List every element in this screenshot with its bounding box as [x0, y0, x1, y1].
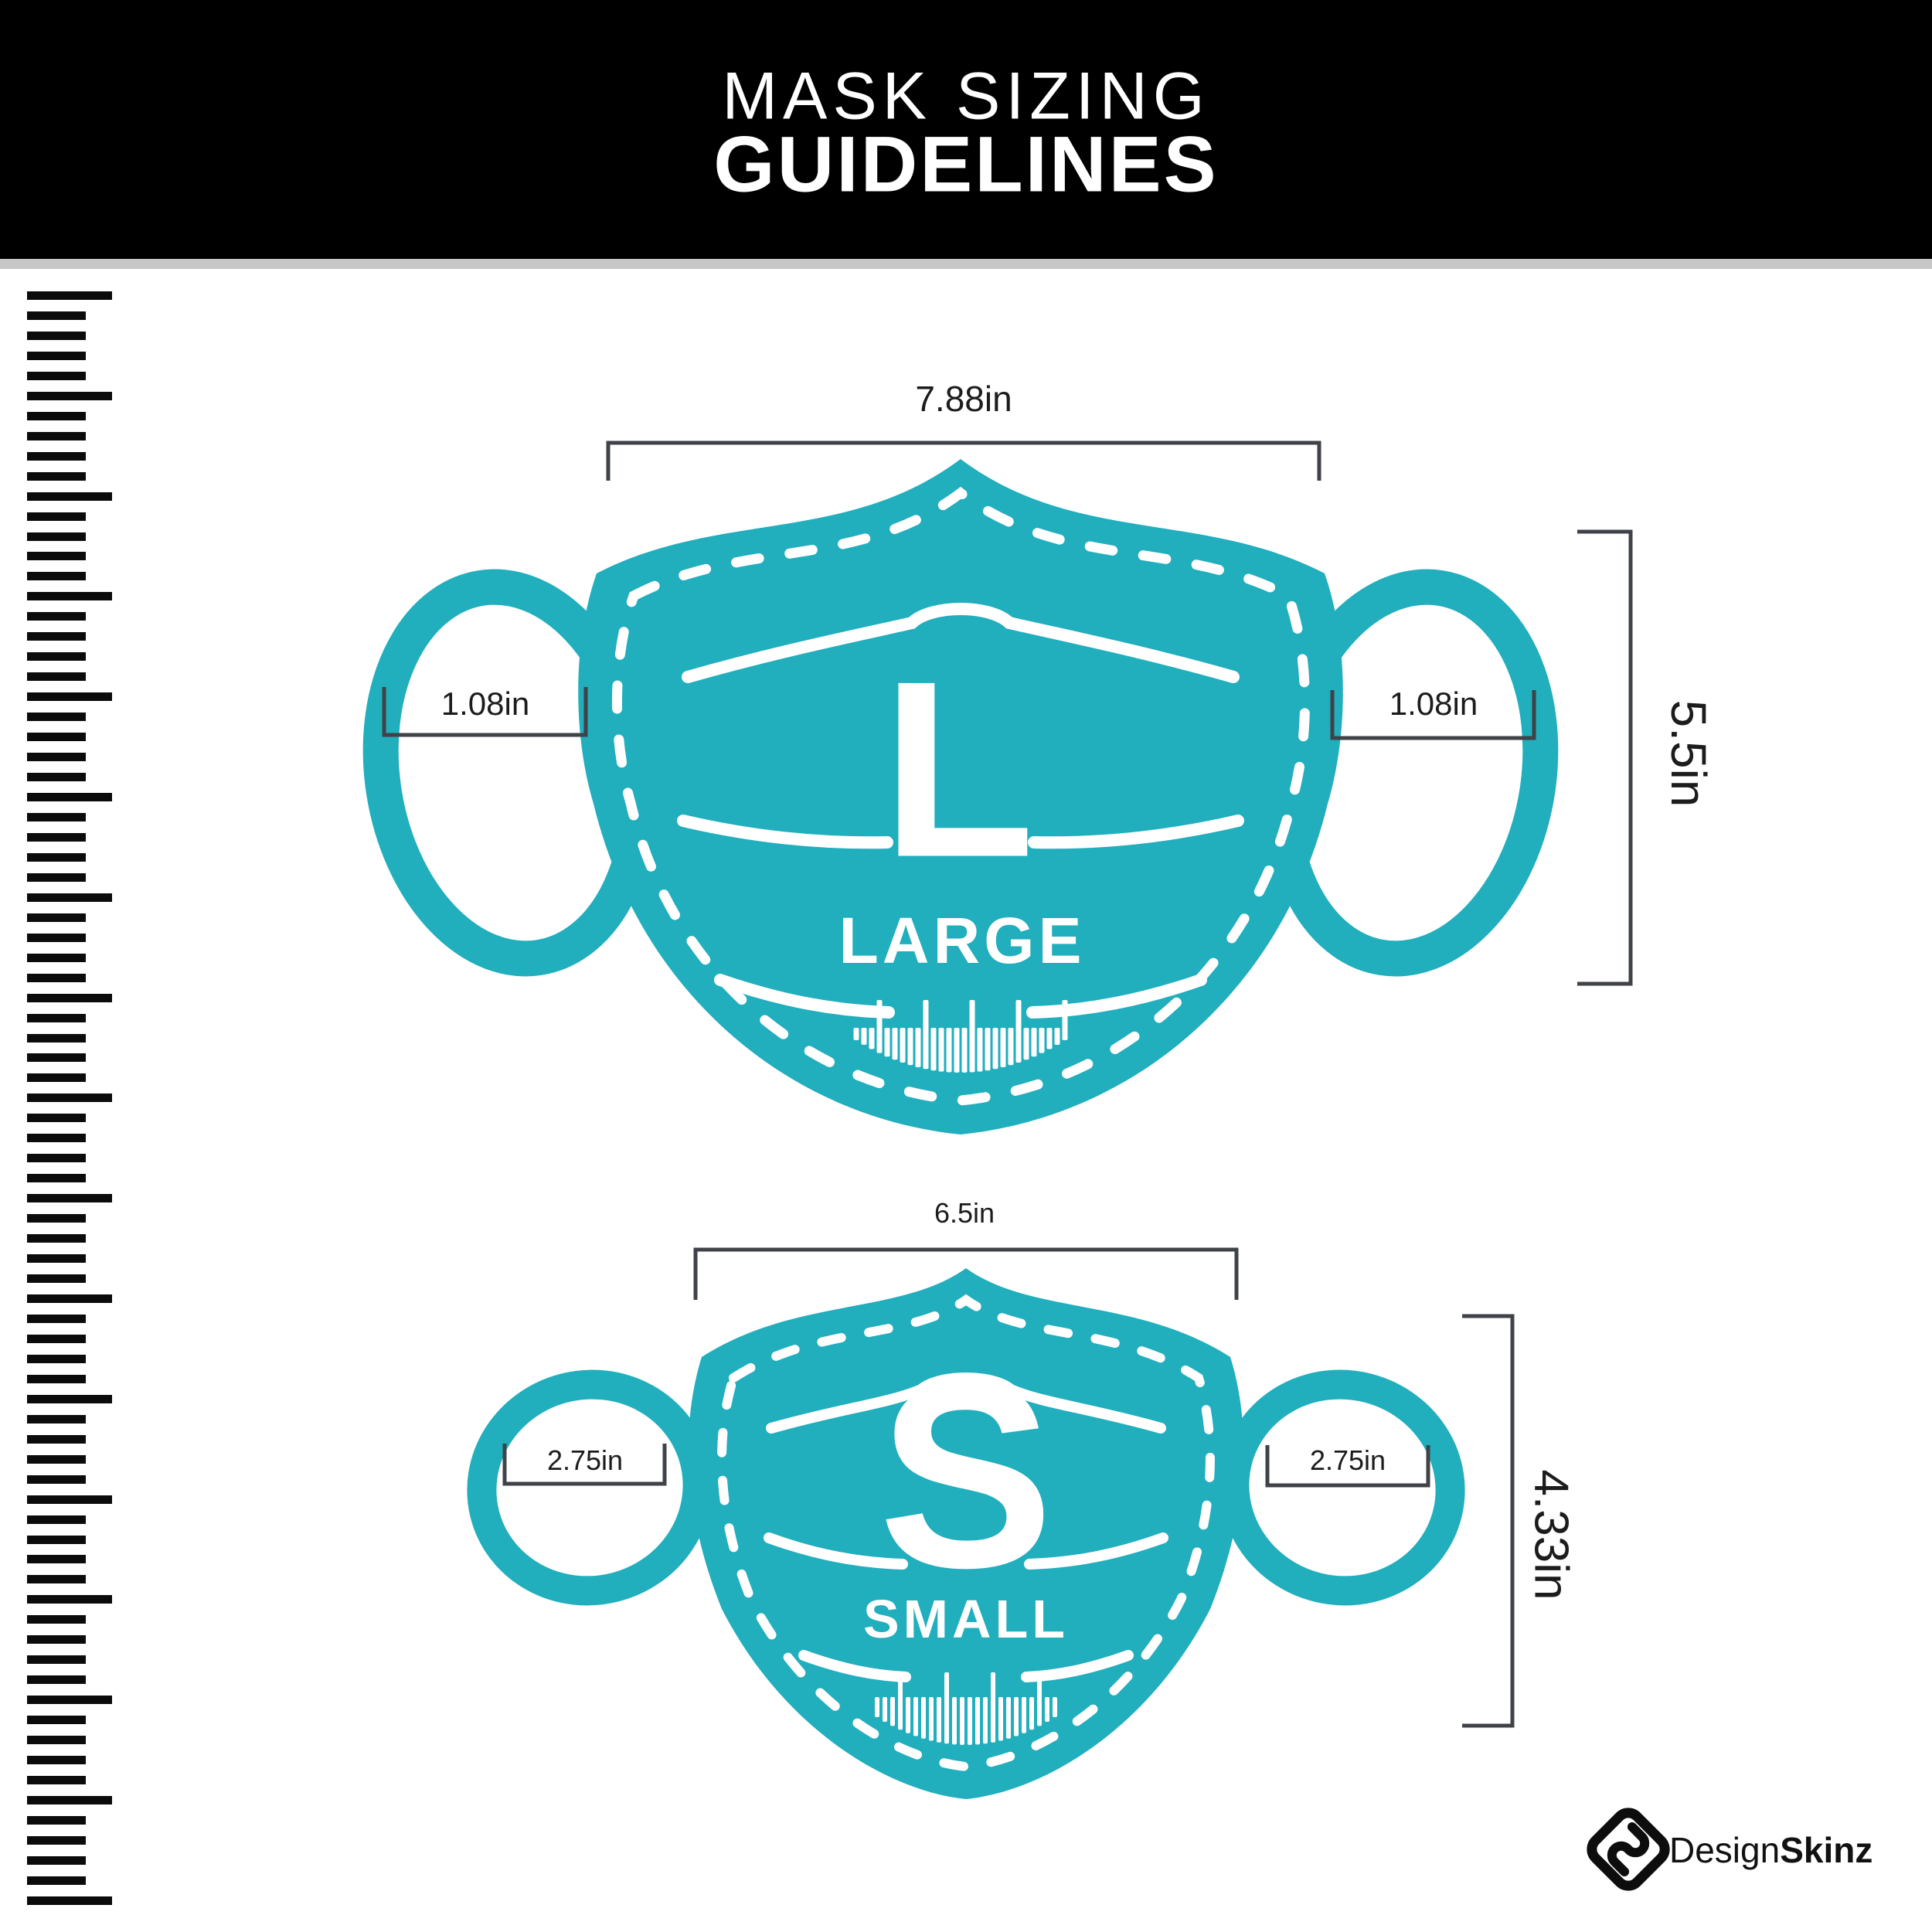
ruler-glyph-bar — [908, 1028, 913, 1065]
ruler-glyph-bar — [975, 1697, 980, 1744]
ruler-glyph-bar — [1016, 1000, 1022, 1063]
ruler-glyph-bar — [1029, 1697, 1034, 1730]
ruler-glyph-bar — [985, 1028, 991, 1070]
ruler-glyph-bar — [890, 1697, 895, 1726]
ruler-glyph-bar — [983, 1697, 988, 1743]
designskinz-wordmark: DesignSkinz — [1669, 1829, 1872, 1871]
ruler-glyph-bar — [1047, 1028, 1053, 1049]
ruler-glyph-bar — [978, 1028, 983, 1072]
ruler-glyph-bar — [939, 1028, 944, 1072]
ruler-glyph-bar — [1009, 1028, 1014, 1065]
large-top-width-label: 7.88in — [915, 378, 1012, 420]
ruler-glyph-bar — [1037, 1672, 1042, 1726]
small-top-width-label: 6.5in — [934, 1197, 995, 1230]
ruler-glyph-bar — [954, 1028, 960, 1073]
ruler-glyph-bar — [998, 1697, 1003, 1741]
ruler-glyph-bar — [937, 1697, 941, 1743]
ruler-glyph-bar — [944, 1672, 949, 1743]
ruler-glyph-bar — [970, 1000, 975, 1073]
ruler-glyph-bar — [1053, 1697, 1057, 1717]
ruler-glyph-bar — [1024, 1028, 1029, 1060]
ruler-glyph-bar — [929, 1697, 934, 1741]
large-right-ear-label: 1.08in — [1389, 685, 1478, 723]
ruler-glyph-bar — [854, 1028, 859, 1040]
ruler-glyph-bar — [1039, 1028, 1045, 1053]
ruler-glyph-bar — [952, 1697, 957, 1744]
ruler-glyph-bar — [900, 1028, 906, 1063]
ruler-glyph-bar — [1032, 1028, 1037, 1056]
large-height-bracket — [1577, 532, 1631, 984]
ruler-glyph-bar — [1063, 1000, 1068, 1040]
ruler-glyph-bar — [923, 1000, 929, 1069]
brand-bold-part: Skinz — [1780, 1830, 1872, 1870]
small-right-ear-loop-icon — [1213, 1362, 1472, 1614]
large-mask-letter: L — [882, 644, 1036, 895]
ruler-glyph-bar — [883, 1697, 887, 1722]
ruler-glyph-bar — [962, 1028, 968, 1073]
large-mask-size-word: LARGE — [839, 908, 1086, 973]
ruler-glyph-bar — [862, 1028, 867, 1045]
ruler-glyph-bar — [1014, 1697, 1019, 1736]
ruler-glyph-bar — [898, 1672, 903, 1730]
ruler-glyph-bar — [1045, 1697, 1049, 1722]
ruler-glyph-bar — [1055, 1028, 1060, 1045]
small-left-ear-loop-icon — [460, 1362, 719, 1614]
small-left-ear-label: 2.75in — [547, 1444, 623, 1477]
small-height-label: 4.33in — [1524, 1470, 1579, 1600]
small-mask-letter: S — [879, 1345, 1054, 1607]
ruler-glyph-bar — [947, 1028, 952, 1073]
large-height-label: 5.5in — [1660, 700, 1717, 808]
ruler-glyph-bar — [916, 1028, 921, 1067]
small-height-bracket — [1462, 1316, 1512, 1726]
ruler-glyph-bar — [906, 1697, 910, 1733]
infographic-canvas: MASK SIZING GUIDELINES — [0, 0, 1932, 1932]
ruler-glyph-bar — [1022, 1697, 1026, 1733]
designskinz-logo-icon — [1587, 1808, 1669, 1890]
ruler-glyph-bar — [991, 1672, 995, 1743]
ruler-glyph-bar — [960, 1697, 964, 1745]
ruler-glyph-bar — [885, 1028, 890, 1056]
ruler-glyph-bar — [968, 1697, 972, 1745]
large-left-ear-label: 1.08in — [441, 685, 529, 723]
brand-regular-part: Design — [1669, 1830, 1780, 1870]
ruler-glyph-bar — [993, 1028, 998, 1069]
small-mask-size-word: SMALL — [863, 1592, 1069, 1646]
ruler-glyph-bar — [869, 1028, 875, 1049]
ruler-glyph-bar — [913, 1697, 918, 1736]
ruler-glyph-bar — [875, 1697, 879, 1717]
ruler-glyph-bar — [921, 1697, 926, 1739]
ruler-glyph-bar — [1001, 1028, 1006, 1067]
ruler-glyph-bar — [931, 1028, 937, 1070]
ruler-glyph-bar — [893, 1028, 898, 1060]
small-right-ear-label: 2.75in — [1310, 1444, 1386, 1477]
ruler-glyph-bar — [877, 1000, 883, 1053]
ruler-glyph-bar — [1006, 1697, 1011, 1739]
